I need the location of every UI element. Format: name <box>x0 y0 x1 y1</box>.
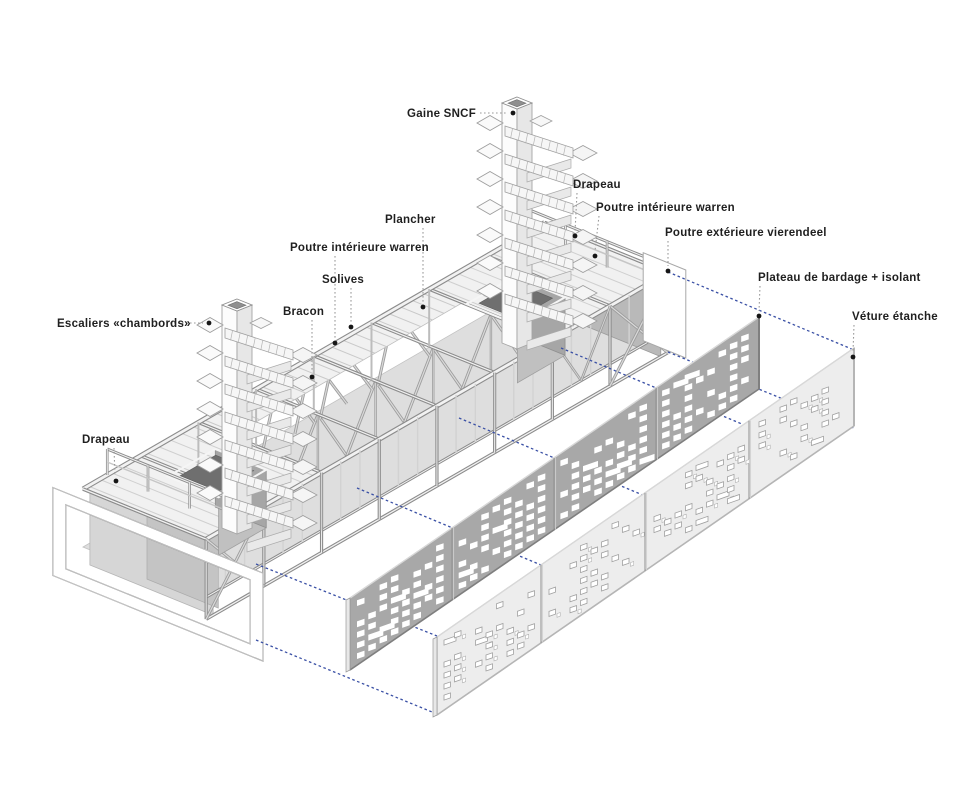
building-structure <box>53 97 854 717</box>
label-bracon: Bracon <box>283 306 324 318</box>
label-drapeau-top: Drapeau <box>573 179 621 191</box>
label-solives: Solives <box>322 274 364 286</box>
right-end-slab <box>643 253 686 358</box>
label-poutre-exterieure-vierendeel: Poutre extérieure vierendeel <box>665 227 827 239</box>
leader-drapeau-top <box>573 193 578 238</box>
label-drapeau-left: Drapeau <box>82 434 130 446</box>
leader-solives <box>349 288 354 329</box>
label-plateau-bardage: Plateau de bardage + isolant <box>758 272 921 284</box>
diagram-page: Gaine SNCF Drapeau Poutre intérieure war… <box>0 0 980 800</box>
leader-poutre-interieure-warren-left <box>333 256 338 345</box>
label-escaliers-chambords: Escaliers «chambords» <box>57 318 191 330</box>
label-veture-etanche: Véture étanche <box>852 311 938 323</box>
label-poutre-interieure-warren-left: Poutre intérieure warren <box>290 242 429 254</box>
leader-plateau-bardage <box>757 286 762 318</box>
label-plancher: Plancher <box>385 214 436 226</box>
exploded-axonometric-diagram: Gaine SNCF Drapeau Poutre intérieure war… <box>0 0 980 800</box>
label-poutre-interieure-warren-right: Poutre intérieure warren <box>596 202 735 214</box>
label-gaine-sncf: Gaine SNCF <box>407 108 476 120</box>
